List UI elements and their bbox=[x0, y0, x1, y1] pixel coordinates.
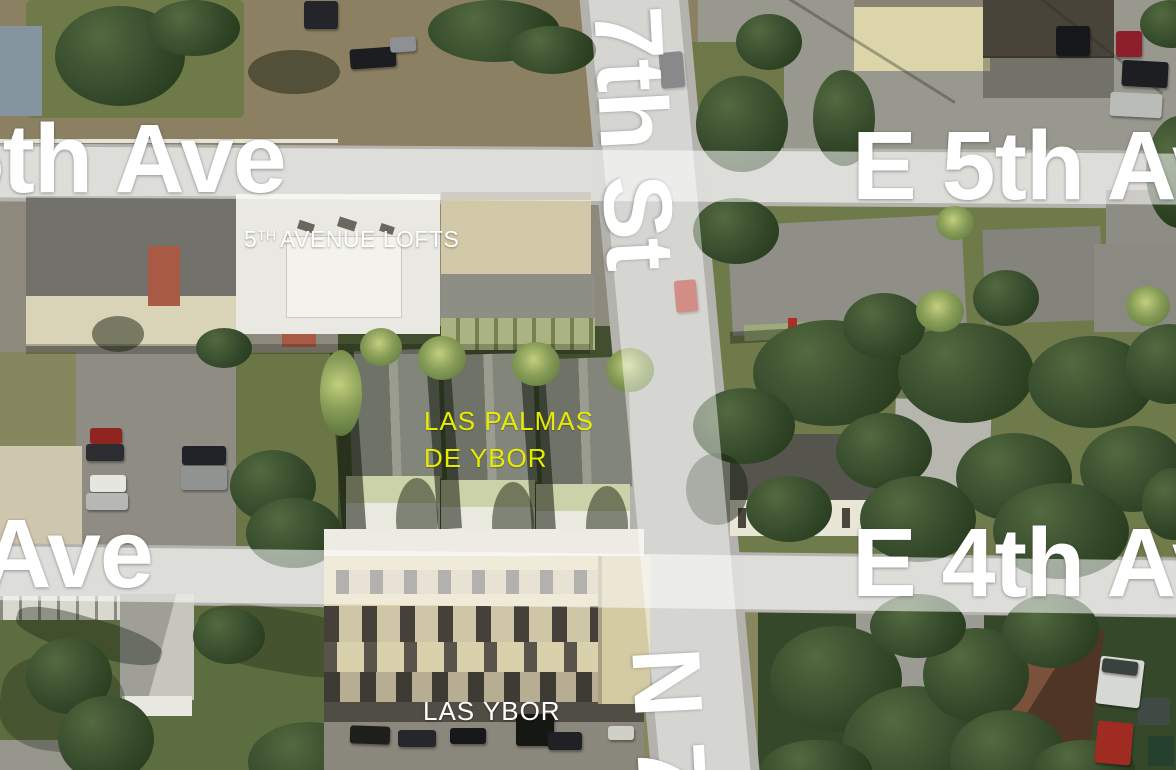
parked-car bbox=[450, 728, 486, 744]
poi-label-las-palmas-de-ybor: LAS PALMAS DE YBOR bbox=[424, 403, 594, 477]
street-label-e4th-ave-left: E 4th Ave bbox=[0, 505, 153, 602]
parked-car bbox=[304, 1, 338, 29]
parked-car bbox=[398, 730, 436, 747]
building-ne-canopy bbox=[983, 0, 1114, 58]
parked-car bbox=[90, 475, 126, 492]
tree bbox=[973, 270, 1039, 326]
parked-car bbox=[350, 725, 391, 744]
tree-shadow bbox=[248, 50, 340, 94]
junk-pile bbox=[1138, 698, 1170, 725]
lasybor-mid-row bbox=[324, 642, 644, 672]
junk-pile bbox=[1148, 736, 1174, 766]
palm-tree bbox=[320, 350, 362, 436]
lofts-ordinal: TH bbox=[257, 227, 276, 243]
tree bbox=[843, 293, 925, 359]
tree bbox=[196, 328, 252, 368]
building-ne-hall bbox=[854, 0, 990, 71]
street-label-e5th-ave-right: E 5th Ave bbox=[852, 117, 1176, 214]
parked-car bbox=[86, 444, 124, 461]
truck-red bbox=[1094, 721, 1134, 766]
street-label-e5th-ave-left: E 5th Ave bbox=[0, 110, 286, 207]
building-lofts-red-unit bbox=[148, 246, 180, 306]
suv-black-ne bbox=[1121, 60, 1168, 88]
las-palmas-line1: LAS PALMAS bbox=[424, 403, 594, 440]
parked-car bbox=[548, 732, 582, 750]
lasybor-balcony-row bbox=[324, 606, 644, 642]
tree-shadow bbox=[92, 316, 144, 352]
tree bbox=[148, 0, 240, 56]
parked-car bbox=[182, 446, 226, 465]
palm-tree bbox=[418, 336, 466, 380]
parked-car bbox=[90, 428, 122, 444]
tree bbox=[693, 198, 779, 264]
parked-car bbox=[181, 466, 227, 490]
tree bbox=[193, 608, 265, 664]
las-palmas-line2: DE YBOR bbox=[424, 440, 594, 477]
lofts-name: AVENUE LOFTS bbox=[280, 226, 459, 252]
street-label-e4th-ave-right: E 4th Ave bbox=[852, 514, 1176, 611]
street-label-n7th-st-top: 7th St bbox=[579, 4, 690, 272]
car-red-ne bbox=[1116, 31, 1142, 57]
palm-tree bbox=[916, 290, 964, 332]
lofts-number: 5 bbox=[244, 226, 257, 252]
building-beige-north bbox=[441, 192, 591, 284]
canopy-shadow bbox=[983, 56, 1114, 98]
poi-label-5th-avenue-lofts: 5THAVENUE LOFTS bbox=[244, 226, 459, 253]
tree bbox=[736, 14, 802, 70]
tree bbox=[746, 476, 832, 542]
building-green-roof bbox=[441, 274, 595, 320]
street-label-n7th-st-bottom: N 7th St bbox=[617, 645, 733, 770]
palm-tree bbox=[1126, 286, 1170, 326]
building-nw-house bbox=[0, 26, 42, 116]
palm-tree bbox=[512, 342, 560, 386]
car-under-canopy bbox=[1056, 26, 1090, 56]
poi-label-las-ybor: LAS YBOR bbox=[423, 696, 561, 727]
palm-tree bbox=[360, 328, 402, 366]
parked-car bbox=[390, 36, 417, 53]
map-viewport[interactable]: E 5th Ave E 5th Ave E 4th Ave E 4th Ave … bbox=[0, 0, 1176, 770]
